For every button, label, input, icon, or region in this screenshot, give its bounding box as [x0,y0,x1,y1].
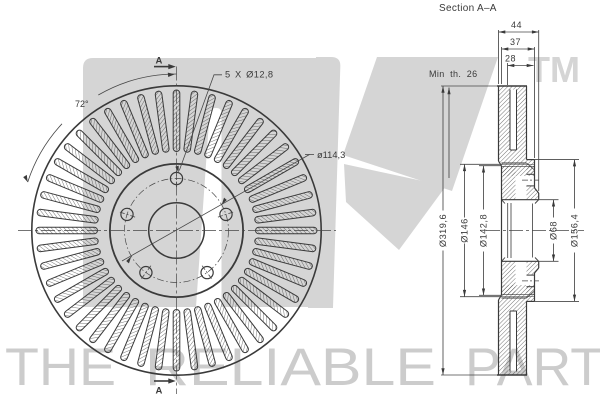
svg-text:28: 28 [505,54,516,64]
svg-text:5 X Ø12,8: 5 X Ø12,8 [225,70,273,80]
svg-text:Ø156,4: Ø156,4 [570,214,580,247]
svg-text:TM: TM [528,49,580,90]
svg-text:Ø319,6: Ø319,6 [438,214,448,247]
svg-text:Ø68: Ø68 [549,221,559,240]
svg-text:PART: PART [465,338,600,397]
svg-text:Section A–A: Section A–A [439,3,497,14]
svg-text:A: A [156,56,163,67]
svg-text:44: 44 [511,20,522,30]
svg-text:ø114,3: ø114,3 [317,150,345,160]
svg-text:Ø142,8: Ø142,8 [479,214,489,247]
svg-text:Min th. 26: Min th. 26 [429,69,478,79]
svg-text:37: 37 [510,37,521,47]
svg-text:Ø146: Ø146 [460,218,470,242]
svg-text:A: A [156,386,163,397]
svg-text:72°: 72° [75,99,89,109]
svg-text:THE: THE [5,338,116,397]
